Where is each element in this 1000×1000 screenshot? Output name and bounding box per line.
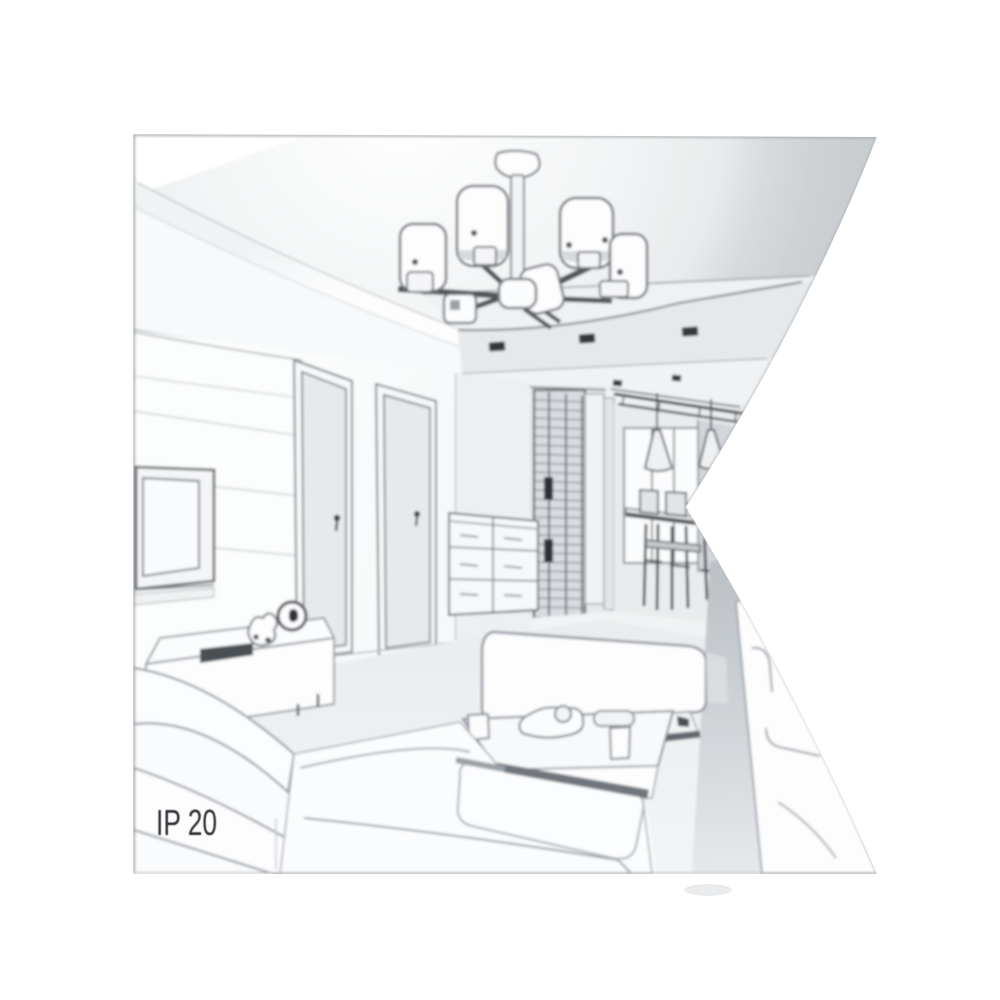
svg-text:IP 20: IP 20: [156, 802, 217, 843]
